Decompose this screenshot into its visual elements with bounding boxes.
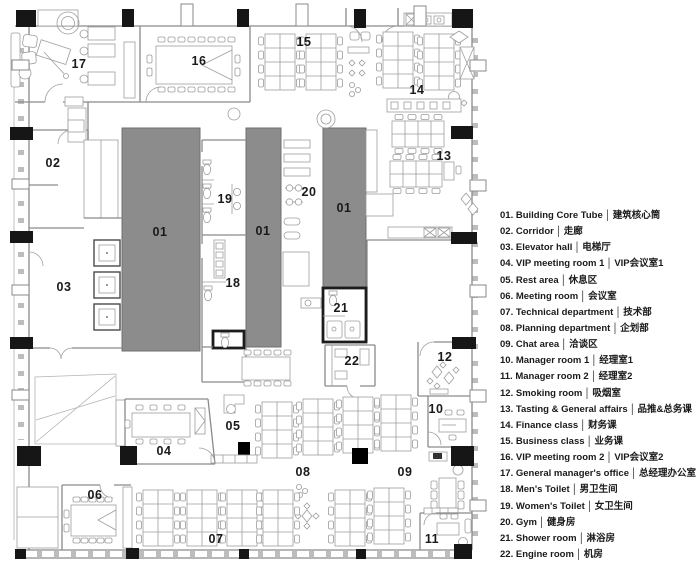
desk-cluster [368,488,411,544]
legend-zh: 建筑核心筒 [613,210,661,221]
room-label-04: 04 [157,444,172,458]
legend-separator: │ [570,484,580,495]
legend-num: 21. [500,533,513,544]
legend-separator: │ [582,388,592,399]
legend-item: 04. VIP meeting room 1│VIP会议室1 [500,256,700,272]
room-label-07: 07 [209,532,224,546]
legend-item: 19. Women's Toilet│女卫生间 [500,499,700,515]
barbell-icon [285,185,303,191]
toilet-icon [203,160,211,175]
legend-num: 20. [500,517,513,528]
legend-zh: 业务课 [594,436,623,447]
barbell-icon [285,199,303,205]
legend-separator: │ [585,436,595,447]
room-label-09: 09 [398,465,413,479]
room-label-05: 05 [226,419,241,433]
legend-separator: │ [559,275,569,286]
desk-cluster [259,34,302,90]
legend-en: VIP meeting room 2 [516,452,605,463]
smoking-table [444,372,454,384]
stairs-icon [366,194,393,216]
legend-en: Gym [516,517,537,528]
gym-bench [284,154,310,162]
manager-desk [36,40,70,65]
legend-num: 15. [500,436,513,447]
room-label-03: 03 [57,280,72,294]
dumbbell-icon [284,218,300,225]
casual-table [302,510,312,522]
legend-num: 03. [500,242,513,253]
legend-num: 05. [500,275,513,286]
shower-tray [327,321,342,338]
sink-icon [233,188,240,195]
conference-table [71,505,116,536]
door-arc [420,342,434,356]
round-table [453,465,463,475]
legend-zh: 企划部 [620,323,649,334]
chat-table [439,478,456,508]
room-label-14: 14 [410,83,425,97]
legend-zh: 走廊 [564,226,583,237]
floor-plan-page: 0101010203040506070809101112131415161718… [0,0,700,567]
shaft [366,130,377,192]
legend-separator: │ [574,549,584,560]
legend-zh: 淋浴房 [587,533,616,544]
door-arc [45,84,63,102]
printer-icon [433,453,442,459]
room-label-18: 18 [226,276,241,290]
room-label-12: 12 [438,350,453,364]
legend-item: 17. General manager's office│总经理办公室 [500,466,700,482]
legend-item: 01. Building Core Tube│建筑核心筒 [500,208,700,224]
plant-icon [317,110,335,128]
legend-en: Chat area [516,339,559,350]
legend-num: 13. [500,404,513,415]
legend-num: 16. [500,452,513,463]
legend-en: Business class [516,436,585,447]
elevator [94,272,120,298]
door-arc [424,513,436,525]
legend-zh: 总经理办公室 [639,468,696,479]
room-label-13: 13 [437,149,452,163]
legend-separator: │ [559,339,569,350]
legend-separator: │ [613,307,623,318]
legend-zh: 健身房 [547,517,576,528]
stairs-southwest [17,487,58,548]
room-label-21: 21 [334,301,349,315]
manager-desk [437,523,459,535]
legend-zh: 经理室1 [599,355,633,366]
legend-zh: 吸烟室 [592,388,621,399]
legend-en: Smoking room [516,388,583,399]
room-label-16: 16 [192,54,207,68]
room-label-22: 22 [345,354,360,368]
legend-separator: │ [604,452,614,463]
legend-en: Tasting & General affairs [516,404,628,415]
core-01-left [122,128,200,351]
legend-separator: │ [589,371,599,382]
stairs-icon [283,252,309,286]
legend-zh: 女卫生间 [595,501,633,512]
legend-zh: 洽谈区 [569,339,598,350]
lounge-chair [461,193,471,205]
legend-en: VIP meeting room 1 [516,258,605,269]
legend-en: Men's Toilet [516,484,570,495]
legend-num: 14. [500,420,513,431]
side-table [444,162,454,180]
toilet-icon [221,333,229,348]
room-label-01: 01 [153,225,168,239]
legend-num: 04. [500,258,513,269]
legend-zh: 电梯厅 [582,242,611,253]
room-21-shower-room [323,288,366,342]
desk-cluster [137,490,180,546]
room-03-elevator-hall [29,228,122,359]
double-door-arc [50,348,72,359]
legend-separator: │ [628,404,638,415]
legend-en: Elevator hall [516,242,573,253]
legend-num: 06. [500,291,513,302]
legend-item: 05. Rest area│休息区 [500,273,700,289]
legend: 01. Building Core Tube│建筑核心筒 02. Corrido… [500,208,700,563]
desk-cluster [392,115,444,154]
legend-item: 15. Business class│业务课 [500,434,700,450]
legend-en: Shower room [516,533,577,544]
workstation-desk [88,72,115,85]
desk-cluster [329,490,372,546]
legend-zh: 品推&总务课 [638,404,692,415]
manager-desk [439,419,466,432]
legend-zh: 经理室2 [599,371,633,382]
legend-en: Rest area [516,275,559,286]
legend-en: Engine room [516,549,574,560]
legend-en: Finance class [516,420,578,431]
legend-item: 20. Gym│健身房 [500,515,700,531]
room-label-19: 19 [218,192,233,206]
legend-item: 07. Technical department│技术部 [500,305,700,321]
room-label-08: 08 [296,465,311,479]
av-cabinet [195,408,205,434]
room-15-business-class [259,32,371,97]
legend-zh: VIP会议室2 [614,452,663,463]
room-09-chat-area [424,478,464,514]
gym-bench [284,140,310,148]
legend-item: 03. Elevator hall│电梯厅 [500,240,700,256]
conference-table [132,413,190,437]
room-label-02: 02 [46,156,61,170]
workstation-desk [88,27,115,40]
room-14-finance-class [377,31,475,112]
legend-separator: │ [585,501,595,512]
legend-item: 02. Corridor│走廊 [500,224,700,240]
gym-bench [284,168,310,176]
room-18-mens-toilet [202,240,246,382]
legend-separator: │ [577,533,587,544]
legend-zh: 技术部 [623,307,652,318]
lounge-chair [468,203,478,215]
room-label-20: 20 [302,185,317,199]
legend-en: Technical department [516,307,614,318]
legend-num: 22. [500,549,513,560]
stairs-northwest [68,102,122,218]
legend-separator: │ [578,420,588,431]
toilet-icon [204,286,212,301]
legend-separator: │ [554,226,564,237]
legend-separator: │ [589,355,599,366]
legend-item: 12. Smoking room│吸烟室 [500,386,700,402]
floor-plan-drawing: 0101010203040506070809101112131415161718… [0,0,492,567]
toilet-icon [203,208,211,223]
legend-separator: │ [629,468,639,479]
room-label-01: 01 [337,201,352,215]
printer-icon [352,448,368,464]
legend-separator: │ [537,517,547,528]
cabinet-wall [123,487,132,548]
door-arc [428,432,441,445]
plant-icon [228,108,240,120]
legend-separator: │ [610,323,620,334]
legend-en: Women's Toilet [516,501,585,512]
legend-zh: 会议室 [588,291,617,302]
desk-cluster [297,399,340,455]
legend-separator: │ [603,210,613,221]
legend-num: 18. [500,484,513,495]
legend-num: 07. [500,307,513,318]
legend-separator: │ [578,291,588,302]
desk-cluster [256,402,299,458]
door-arc [29,252,43,266]
desk-cluster [377,32,420,88]
shower-tray [345,321,360,338]
legend-num: 12. [500,388,513,399]
sofa [465,519,471,533]
legend-en: Corridor [516,226,554,237]
desk-cluster [375,395,418,451]
legend-zh: 财务课 [588,420,617,431]
room-label-15: 15 [297,35,312,49]
desk-cluster [337,397,380,453]
legend-item: 14. Finance class│财务课 [500,418,700,434]
legend-item: 11. Manager room 2│经理室2 [500,369,700,385]
meeting-table [242,357,290,380]
room-label-01: 01 [256,224,271,238]
room-label-10: 10 [429,402,444,416]
armchair [22,34,38,48]
room-label-17: 17 [72,57,87,71]
legend-en: Meeting room [516,291,578,302]
desk-cluster [390,155,442,194]
room-label-11: 11 [425,532,439,546]
elevator [94,304,120,330]
cabinet [124,42,135,98]
workstation-desk [88,44,115,57]
legend-en: Planning department [516,323,610,334]
legend-num: 11. [500,371,513,382]
legend-item: 22. Engine room│机房 [500,547,700,563]
low-cabinet [211,455,257,463]
legend-en: Building Core Tube [516,210,603,221]
legend-num: 10. [500,355,513,366]
elevator [94,240,120,266]
legend-item: 13. Tasting & General affairs│品推&总务课 [500,402,700,418]
legend-item: 10. Manager room 1│经理室1 [500,353,700,369]
legend-item: 21. Shower room│淋浴房 [500,531,700,547]
legend-zh: 机房 [584,549,603,560]
legend-zh: 男卫生间 [580,484,618,495]
legend-num: 19. [500,501,513,512]
legend-item: 08. Planning department│企划部 [500,321,700,337]
legend-en: General manager's office [516,468,629,479]
room-label-06: 06 [88,488,103,502]
legend-item: 06. Meeting room│会议室 [500,289,700,305]
legend-zh: 休息区 [569,275,598,286]
legend-en: Manager room 1 [516,355,589,366]
building-cores [122,128,366,351]
desk-cluster [418,34,461,90]
legend-num: 08. [500,323,513,334]
sink-icon [233,202,240,209]
legend-separator: │ [572,242,582,253]
legend-zh: VIP会议室1 [614,258,663,269]
legend-num: 09. [500,339,513,350]
room-19-womens-toilet [202,108,246,347]
smoking-table [432,366,442,378]
desk-cluster [257,490,300,546]
legend-num: 02. [500,226,513,237]
legend-item: 16. VIP meeting room 2│VIP会议室2 [500,450,700,466]
legend-item: 09. Chat area│洽谈区 [500,337,700,353]
legend-en: Manager room 2 [515,371,588,382]
dumbbell-icon [284,232,300,239]
legend-num: 01. [500,210,513,221]
legend-separator: │ [604,258,614,269]
legend-num: 17. [500,468,513,479]
legend-item: 18. Men's Toilet│男卫生间 [500,482,700,498]
toilet-icon [203,184,211,199]
